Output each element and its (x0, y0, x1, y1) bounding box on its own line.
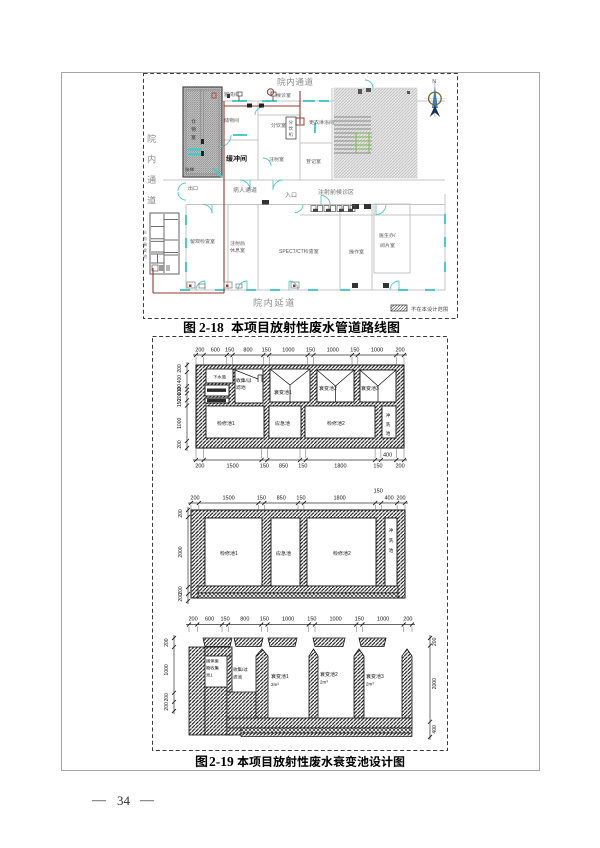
svg-text:1800: 1800 (333, 496, 345, 502)
svg-text:200: 200 (403, 617, 412, 623)
svg-text:200: 200 (195, 348, 204, 354)
svg-text:1: 1 (232, 421, 235, 427)
svg-text:150: 150 (307, 617, 316, 623)
svg-text:SPECT/CT: SPECT/CT (279, 249, 304, 255)
svg-text:1000: 1000 (371, 348, 383, 354)
svg-text:1500: 1500 (222, 496, 234, 502)
svg-text:2m³: 2m³ (271, 682, 279, 687)
svg-text:1000: 1000 (164, 664, 170, 675)
svg-text:—: — (139, 793, 155, 808)
svg-text:200: 200 (189, 617, 198, 623)
svg-text:200: 200 (164, 702, 170, 711)
svg-text:200: 200 (190, 496, 199, 502)
svg-text:200: 200 (177, 364, 183, 373)
svg-text:2: 2 (334, 386, 337, 392)
svg-text:1800: 1800 (334, 464, 346, 470)
svg-text:—: — (91, 793, 107, 808)
svg-text:1: 1 (235, 551, 238, 557)
svg-text:2: 2 (342, 421, 345, 427)
svg-text:150: 150 (296, 496, 305, 502)
svg-text:1: 1 (289, 390, 292, 396)
svg-text:150: 150 (374, 489, 383, 495)
svg-text:2: 2 (348, 551, 351, 557)
svg-text:600: 600 (205, 617, 214, 623)
svg-text:2m³: 2m³ (366, 682, 374, 687)
svg-text:150: 150 (373, 464, 382, 470)
svg-text:1000: 1000 (327, 348, 339, 354)
svg-text:34: 34 (117, 793, 131, 808)
svg-text:2-19: 2-19 (209, 754, 234, 769)
svg-text:1000: 1000 (377, 617, 389, 623)
svg-text:N: N (432, 79, 436, 85)
svg-text:200: 200 (164, 638, 170, 647)
svg-text:1000: 1000 (282, 617, 294, 623)
svg-text:600: 600 (211, 348, 220, 354)
svg-text:1000: 1000 (282, 348, 294, 354)
svg-text:2m³: 2m³ (320, 680, 328, 685)
svg-text:200: 200 (178, 593, 184, 602)
svg-text:150: 150 (260, 464, 269, 470)
svg-text:150: 150 (260, 617, 269, 623)
svg-text:150: 150 (350, 348, 359, 354)
svg-text:150: 150 (257, 496, 266, 502)
svg-text:200: 200 (396, 464, 405, 470)
svg-text:850: 850 (277, 496, 286, 502)
svg-text:200: 200 (396, 348, 405, 354)
svg-text:2000: 2000 (432, 678, 438, 689)
svg-text:150: 150 (262, 348, 271, 354)
svg-text:150: 150 (225, 348, 234, 354)
svg-text:1500: 1500 (226, 464, 238, 470)
svg-text:800: 800 (243, 348, 252, 354)
svg-text:1000: 1000 (177, 418, 183, 429)
svg-text:150: 150 (221, 617, 230, 623)
svg-text:200: 200 (195, 464, 204, 470)
svg-text:200: 200 (164, 693, 170, 702)
svg-text:850: 850 (279, 464, 288, 470)
svg-text:400: 400 (432, 725, 438, 734)
svg-text:150: 150 (306, 348, 315, 354)
svg-text:2: 2 (335, 672, 338, 678)
svg-text:200: 200 (178, 509, 184, 518)
svg-text:2000: 2000 (178, 546, 184, 557)
svg-text:1: 1 (286, 674, 289, 680)
svg-text:400: 400 (385, 496, 394, 502)
svg-text:2-18: 2-18 (199, 320, 224, 335)
svg-text:200: 200 (432, 637, 438, 646)
svg-text:400: 400 (383, 453, 392, 459)
svg-text:800: 800 (240, 617, 249, 623)
svg-text:150: 150 (177, 399, 183, 408)
svg-text:200: 200 (396, 496, 405, 502)
svg-text:150: 150 (298, 464, 307, 470)
svg-text:200: 200 (177, 440, 183, 449)
svg-text:3: 3 (376, 386, 379, 392)
svg-text:150: 150 (355, 617, 364, 623)
svg-text:3: 3 (381, 674, 384, 680)
svg-text:1000: 1000 (329, 617, 341, 623)
svg-text:400: 400 (177, 375, 183, 384)
